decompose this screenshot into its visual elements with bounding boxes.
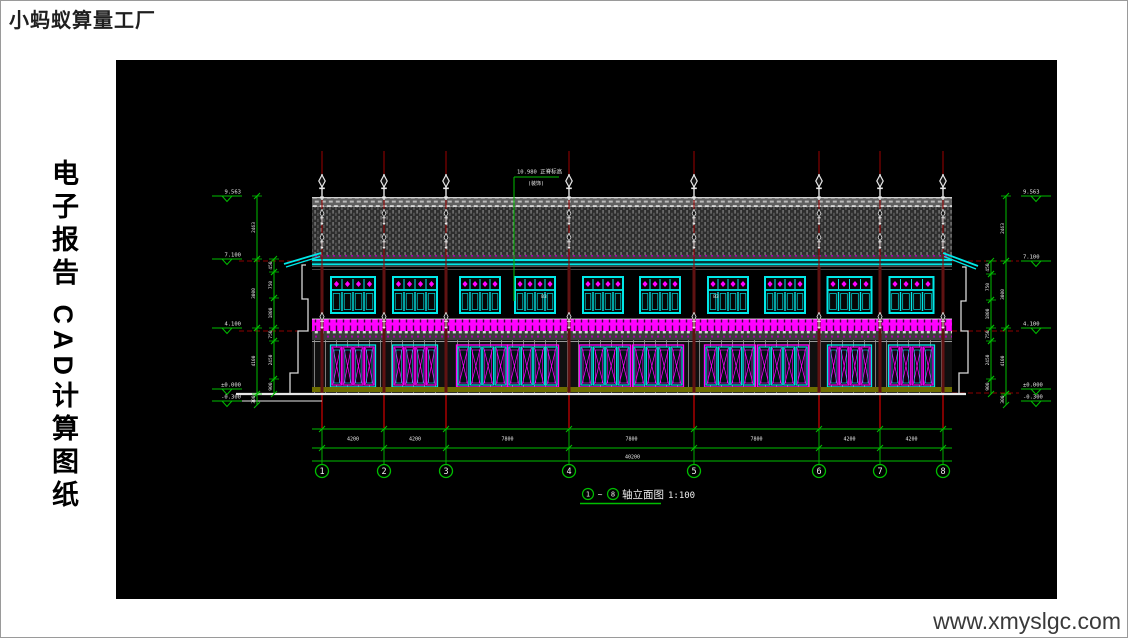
svg-text:1: 1 [586,491,590,499]
svg-text:1:100: 1:100 [668,491,695,501]
side-title: 电子报告 CAD计算图纸 [49,159,76,513]
svg-text:10.980 正脊标高: 10.980 正脊标高 [517,168,563,176]
svg-text:2463: 2463 [251,222,257,233]
svg-text:4100: 4100 [251,355,257,366]
svg-text:7800: 7800 [625,437,637,443]
svg-text:2463: 2463 [1000,223,1006,234]
drawing-title: 1~8轴立面图1:100 [580,488,695,504]
cad-canvas: B3B3420042007800780078004200420040200123… [116,60,1057,599]
ground-line [236,394,966,401]
svg-text:750: 750 [268,330,274,338]
svg-text:4200: 4200 [905,437,917,443]
balcony-band [312,319,952,340]
svg-text:9.563: 9.563 [224,190,241,196]
svg-text:±0.000: ±0.000 [221,383,241,389]
svg-text:450: 450 [985,263,991,271]
svg-text:(装饰): (装饰) [528,180,544,187]
svg-text:4200: 4200 [347,437,359,443]
svg-text:1: 1 [319,467,324,477]
svg-text:7.100: 7.100 [224,253,241,259]
bottom-dimensions: 420042007800780078004200420040200 [312,426,952,464]
brand-watermark: 小蚂蚁算量工厂 [9,4,156,33]
svg-text:-0.300: -0.300 [221,395,241,401]
svg-text:7.100: 7.100 [1023,255,1040,261]
svg-text:3000: 3000 [251,288,257,299]
svg-text:1800: 1800 [268,307,274,318]
svg-text:±0.000: ±0.000 [1023,383,1043,389]
svg-text:B3: B3 [541,294,547,300]
svg-text:~: ~ [598,490,603,499]
svg-text:7: 7 [877,467,882,477]
svg-text:750: 750 [985,283,991,291]
svg-text:3: 3 [443,467,448,477]
svg-text:1800: 1800 [985,308,991,319]
svg-text:2: 2 [381,467,386,477]
cad-drawing: B3B3420042007800780078004200420040200123… [116,60,1057,599]
svg-text:3000: 3000 [1000,289,1006,300]
svg-text:轴立面图: 轴立面图 [622,488,664,501]
svg-text:40200: 40200 [625,455,640,461]
svg-text:6: 6 [816,467,821,477]
right-dim-chains: 24633000410030045075018007502450900 [985,193,1011,408]
lower-floor [312,340,952,393]
svg-text:4200: 4200 [843,437,855,443]
elevation-markers-right: 9.5637.1004.100±0.000-0.300 [1021,190,1051,407]
svg-text:750: 750 [268,281,274,289]
report-page: 小蚂蚁算量工厂 电子报告 CAD计算图纸 B3B3420042007800780… [0,0,1128,638]
svg-text:-0.300: -0.300 [1023,395,1043,401]
svg-text:750: 750 [985,330,991,338]
svg-text:4100: 4100 [1000,355,1006,366]
svg-text:900: 900 [985,382,991,390]
svg-text:8: 8 [940,467,945,477]
svg-text:4.100: 4.100 [224,322,241,328]
roof [312,198,952,267]
left-dim-chains: 24633000410030045075018007502450900 [251,193,279,408]
svg-text:2450: 2450 [985,354,991,365]
svg-text:8: 8 [611,491,615,499]
grid-bubbles: 12345678 [316,465,950,478]
website-watermark: www.xmyslgc.com [933,608,1121,635]
elevation-markers-left: 9.5637.1004.100±0.000-0.300 [212,190,242,407]
svg-text:4: 4 [566,467,571,477]
svg-text:7800: 7800 [750,437,762,443]
svg-text:5: 5 [691,467,696,477]
svg-text:4200: 4200 [409,437,421,443]
upper-floor: B3B3 [312,267,952,319]
svg-text:2450: 2450 [268,354,274,365]
svg-text:B3: B3 [713,294,719,300]
svg-text:300: 300 [251,395,257,403]
svg-text:900: 900 [268,382,274,390]
svg-text:7800: 7800 [501,437,513,443]
svg-text:9.563: 9.563 [1023,190,1040,196]
svg-text:4.100: 4.100 [1023,322,1040,328]
svg-text:450: 450 [268,261,274,269]
svg-text:300: 300 [1000,395,1006,403]
